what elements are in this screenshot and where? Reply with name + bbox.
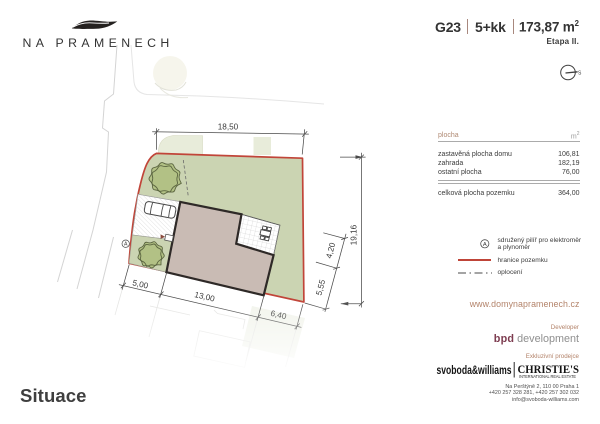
svg-text:18,50: 18,50 xyxy=(218,122,239,131)
svg-text:svoboda&williams: svoboda&williams xyxy=(437,363,512,377)
svg-text:5,00: 5,00 xyxy=(131,278,149,291)
svg-text:5,55: 5,55 xyxy=(314,278,327,296)
svg-text:A: A xyxy=(124,242,128,248)
svg-text:19,16: 19,16 xyxy=(349,224,358,245)
svg-text:4,20: 4,20 xyxy=(324,241,337,259)
svg-text:A: A xyxy=(482,242,486,248)
svg-text:S: S xyxy=(578,71,582,77)
svg-text:INTERNATIONAL REAL ESTATE: INTERNATIONAL REAL ESTATE xyxy=(519,374,576,379)
